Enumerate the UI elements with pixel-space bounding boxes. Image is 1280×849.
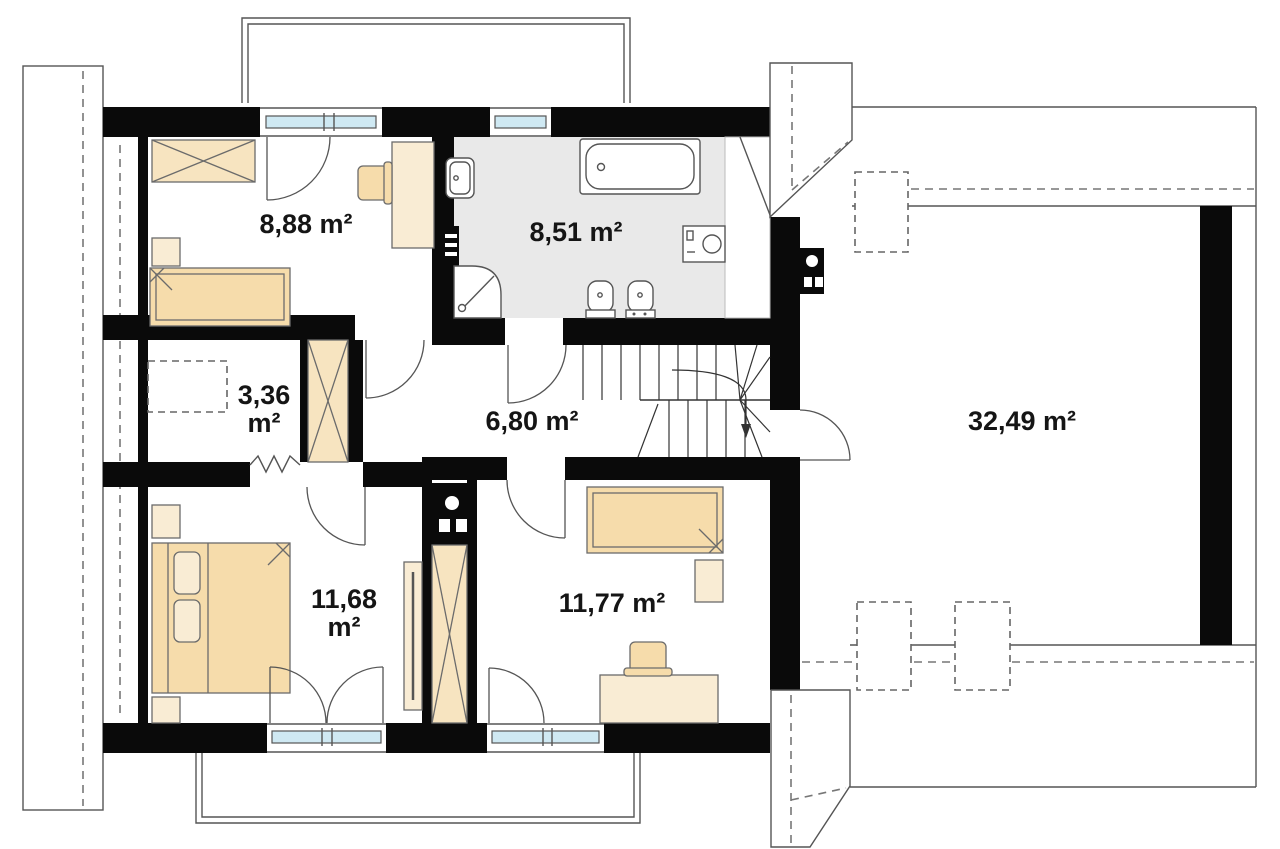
double-bed-symbol (152, 543, 290, 693)
radiator-symbol (443, 226, 459, 266)
chimney-dashed-bottom-right (955, 602, 1010, 690)
wardrobe-symbol (152, 140, 255, 182)
stair-arrow-head (741, 424, 751, 438)
wardrobe-symbol (308, 340, 348, 462)
mirror-cabinet-symbol (404, 562, 422, 710)
insulation-zigzag (250, 456, 300, 472)
dormer-top (770, 63, 852, 217)
nightstand-symbol (152, 238, 180, 266)
balcony-door-lower-right (489, 668, 544, 723)
floor-plan-page: 8,88 m² 8,51 m² 3,36 m² 6,80 m² 11,68 m²… (0, 0, 1280, 849)
label-bedroom-lower-left-value: 11,68 (311, 584, 377, 614)
label-storage-value: 3,36 (238, 380, 291, 410)
label-bedroom-lower-left-unit: m² (328, 612, 361, 642)
bathroom-low-zone (725, 137, 770, 318)
label-bedroom-lower-right: 11,77 m² (559, 588, 666, 618)
label-bedroom-upper-left: 8,88 m² (259, 209, 352, 239)
shower-symbol (454, 266, 501, 318)
door-hall-to-bathroom (508, 345, 566, 403)
door-hall-to-upper-bedroom (366, 340, 424, 398)
bedroom-lower-left-furniture (152, 505, 422, 723)
floor-plan-drawing: 8,88 m² 8,51 m² 3,36 m² 6,80 m² 11,68 m²… (0, 0, 1280, 849)
desk-symbol (392, 142, 434, 248)
desk-symbol (600, 675, 718, 723)
label-attic: 32,49 m² (968, 406, 1076, 436)
stairs-symbol (583, 345, 770, 457)
door-hall-to-lower-left-bedroom (307, 487, 365, 545)
balcony-bottom (196, 753, 640, 823)
toilet-symbol (586, 281, 615, 318)
door-hall-to-attic (800, 410, 850, 460)
washing-machine-symbol (683, 226, 725, 262)
chimney-dashed-bottom-left (857, 602, 911, 690)
window-bedroom-lower-right (487, 723, 604, 753)
balcony-door-upper-bedroom (267, 137, 330, 200)
roof-strip-left (23, 66, 103, 810)
nightstand-symbol (695, 560, 723, 602)
bathtub-symbol (580, 139, 700, 194)
chimney-block-right (800, 248, 824, 294)
chimney-dashed-top (855, 172, 908, 252)
single-bed-symbol (150, 268, 290, 326)
label-bathroom: 8,51 m² (529, 217, 622, 247)
balcony-top (242, 18, 630, 103)
bidet-symbol (626, 281, 655, 318)
nightstand-symbol (152, 505, 180, 538)
label-storage-unit: m² (248, 408, 281, 438)
label-hall: 6,80 m² (485, 406, 578, 436)
chair-symbol (358, 162, 392, 204)
wardrobe-symbol (432, 545, 467, 723)
window-bedroom-lower-left (267, 723, 386, 753)
dormer-bottom (771, 690, 850, 847)
door-hall-to-lower-right-bedroom (507, 480, 565, 538)
nightstand-symbol (152, 697, 180, 723)
chimney-block-center (432, 483, 472, 545)
window-bathroom (490, 107, 551, 137)
chair-symbol (624, 642, 672, 676)
washbasin-symbol (446, 158, 474, 198)
single-bed-symbol (587, 487, 723, 553)
floor-opening-dashed (148, 361, 227, 412)
window-bedroom-upper (260, 107, 382, 137)
